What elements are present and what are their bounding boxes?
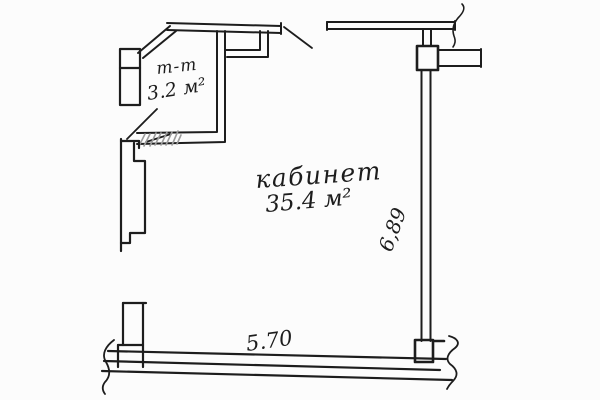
right-wall-top-junction-block <box>417 46 438 70</box>
left-wall-middle <box>121 139 145 251</box>
corner-niche-walls <box>226 31 268 57</box>
top-right-wall <box>327 21 455 30</box>
entry-door-swing-line <box>284 27 312 48</box>
dimension-bottom-wall-label: 5.70 <box>244 326 294 356</box>
right-wall-side-stub <box>438 49 481 67</box>
break-mark-bottom-right <box>447 336 458 389</box>
small-room-area-label: 3.2 м² <box>145 74 207 105</box>
floorplan-canvas: т-т 3.2 м² кабинет 35.4 м² 6,89 5.70 <box>0 0 600 400</box>
right-wall <box>422 29 432 341</box>
floorplan-sketch: т-т 3.2 м² кабинет 35.4 м² 6,89 5.70 <box>0 0 600 400</box>
bottom-left-column <box>118 303 146 367</box>
break-mark-bottom-left <box>103 340 114 394</box>
bottom-wall <box>102 351 452 380</box>
dimension-right-wall-label: 6,89 <box>374 204 412 254</box>
window-pier-top-left <box>120 49 140 105</box>
